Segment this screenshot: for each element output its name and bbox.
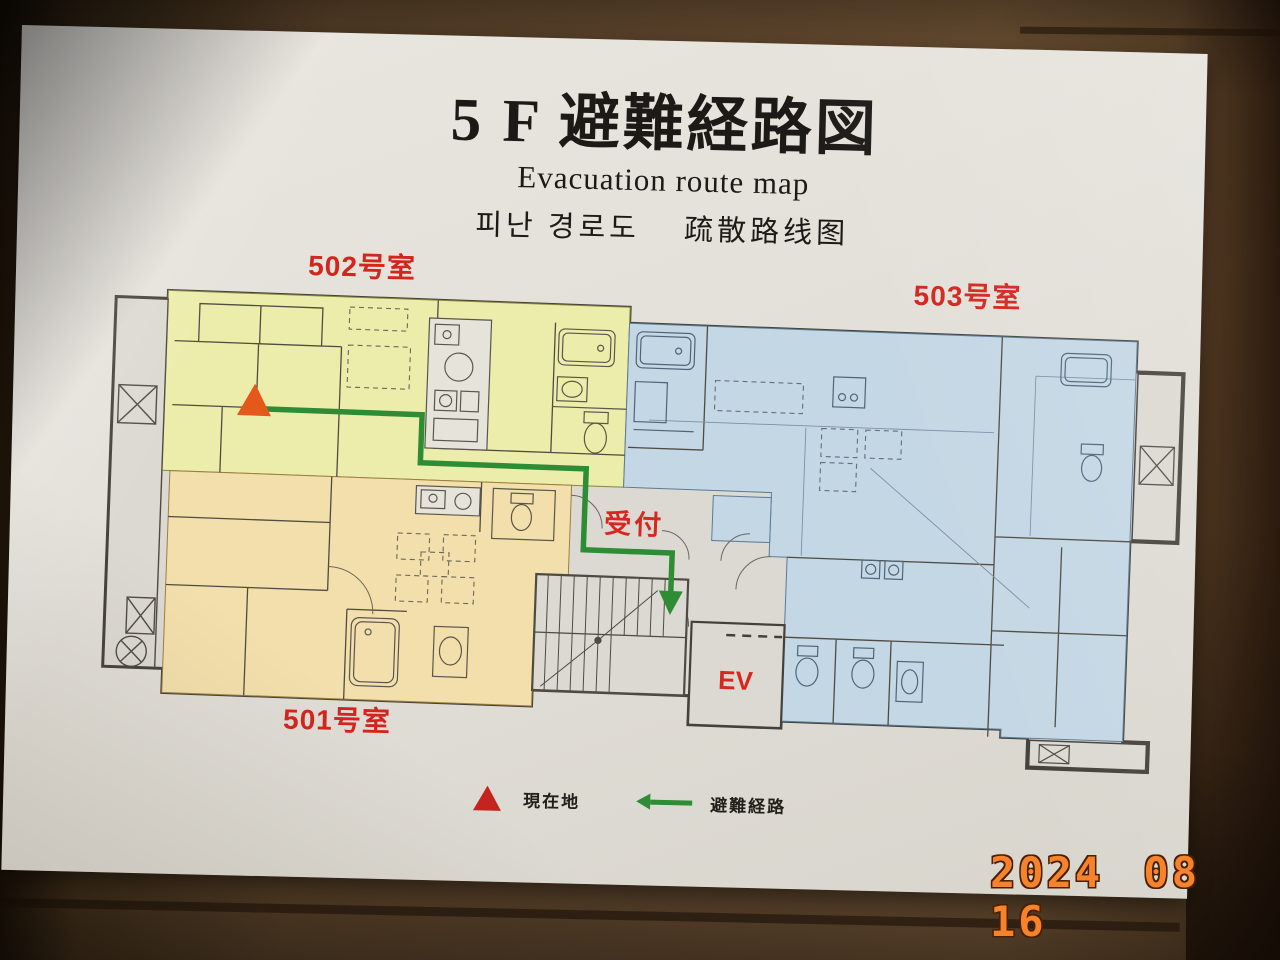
- legend: 現在地 避難経路: [473, 780, 787, 822]
- evacuation-route-arrow-icon: [636, 793, 692, 810]
- arrow-head: [636, 793, 650, 809]
- room-label-502: 502号室: [308, 244, 417, 287]
- title-block: 5 F 避難経路図 Evacuation route map 피난 경로도 疏散…: [312, 82, 1016, 256]
- camera-date-stamp: 2024 08 16: [990, 848, 1280, 946]
- reception-label: 受付: [604, 508, 665, 541]
- unit-503-entry-area: [712, 495, 772, 542]
- evacuation-poster: 5 F 避難経路図 Evacuation route map 피난 경로도 疏散…: [1, 25, 1207, 899]
- arrow-shaft: [650, 799, 692, 805]
- east-balcony: [1132, 374, 1182, 542]
- kitchen-unit-502: [425, 318, 492, 450]
- floor-plan: EV 受付: [92, 282, 1188, 786]
- legend-spacer: [580, 800, 636, 801]
- southeast-balcony: [1029, 740, 1147, 770]
- poster-title-korean-chinese: 피난 경로도 疏散路线图: [312, 197, 1013, 256]
- legend-current-location-label: 現在地: [523, 786, 581, 812]
- kitchen-unit-501: [415, 486, 480, 516]
- elevator-room: EV: [688, 622, 785, 728]
- current-location-icon: [473, 785, 502, 811]
- legend-evacuation-route-label: 避難経路: [710, 791, 787, 818]
- elevator-label: EV: [718, 665, 754, 696]
- room-label-503: 503号室: [913, 274, 1022, 317]
- floor-plan-drawing: EV 受付: [92, 282, 1188, 786]
